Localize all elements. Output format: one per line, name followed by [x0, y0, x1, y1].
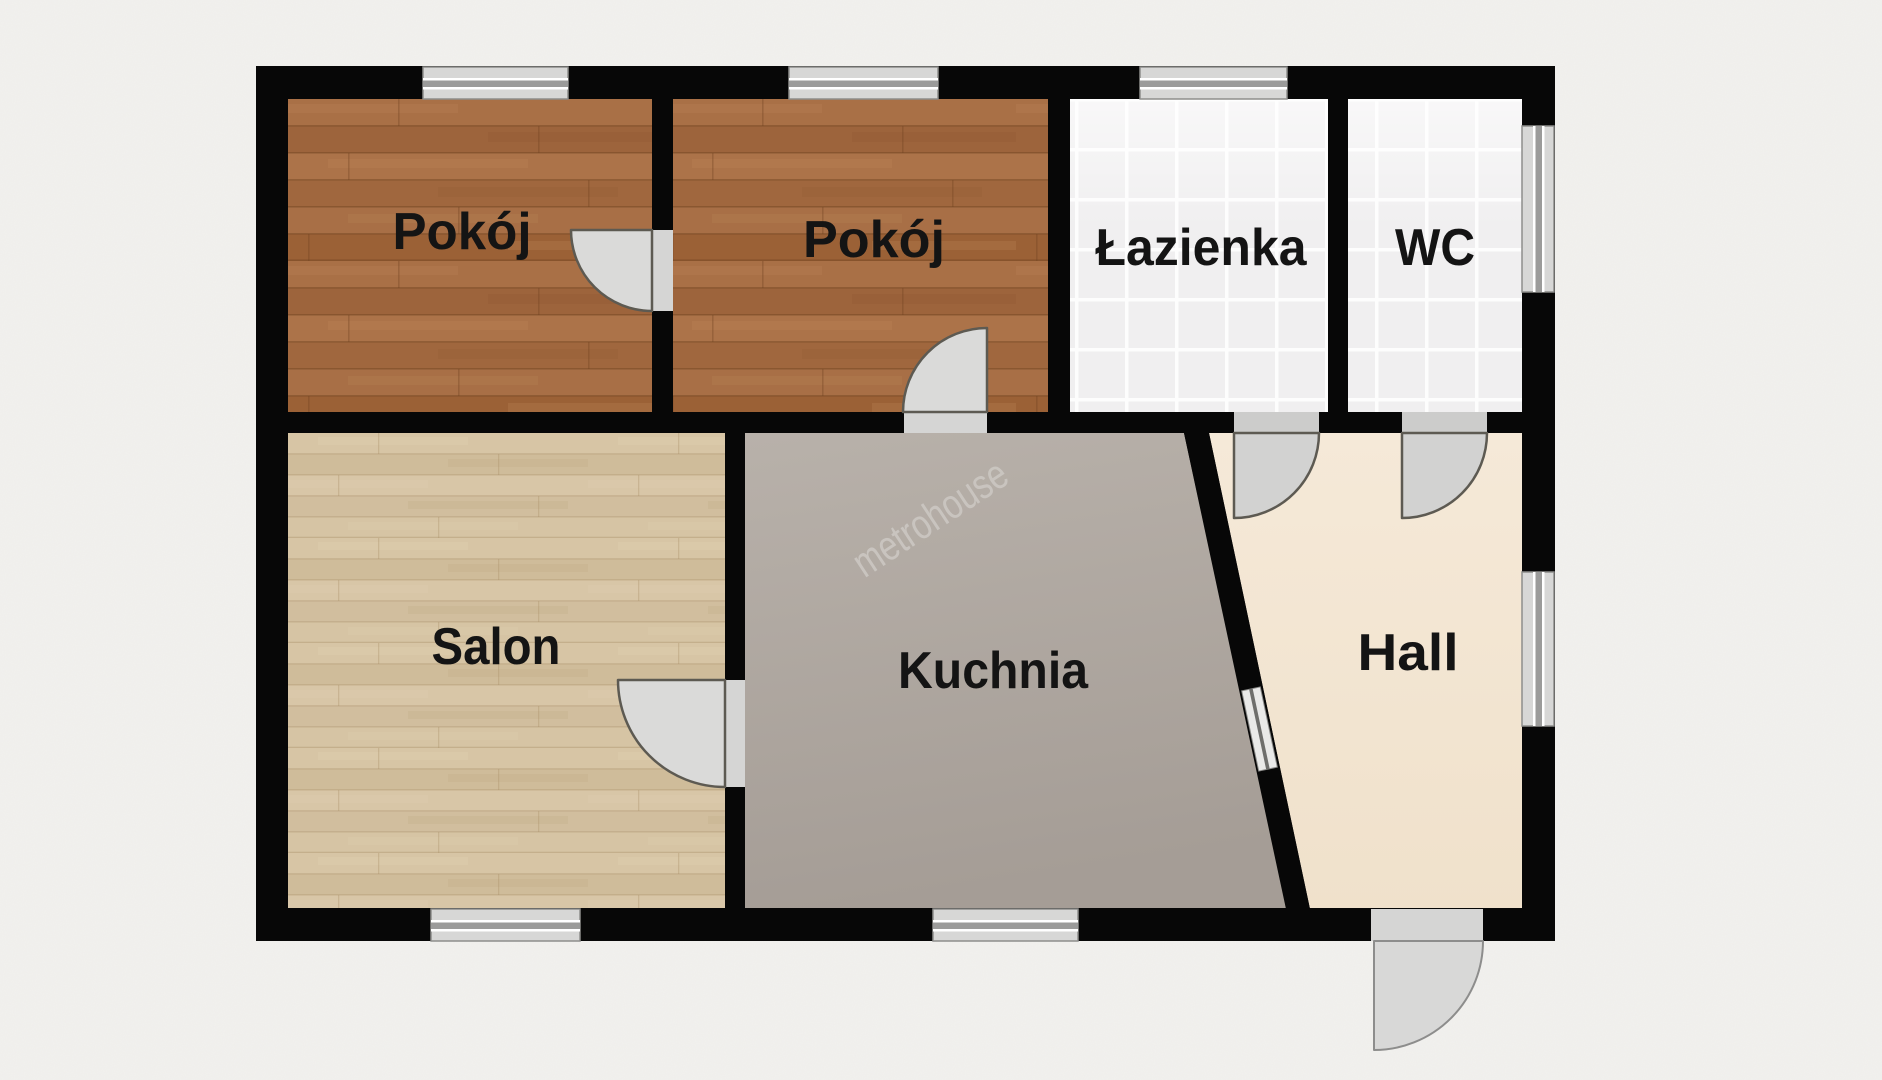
- svg-text:Hall: Hall: [1358, 624, 1459, 682]
- svg-text:Pokój: Pokój: [393, 203, 532, 261]
- svg-text:Pokój: Pokój: [803, 211, 945, 269]
- svg-text:Salon: Salon: [432, 618, 561, 676]
- svg-text:Łazienka: Łazienka: [1096, 219, 1308, 277]
- svg-text:Kuchnia: Kuchnia: [898, 642, 1089, 700]
- svg-text:WC: WC: [1395, 219, 1475, 277]
